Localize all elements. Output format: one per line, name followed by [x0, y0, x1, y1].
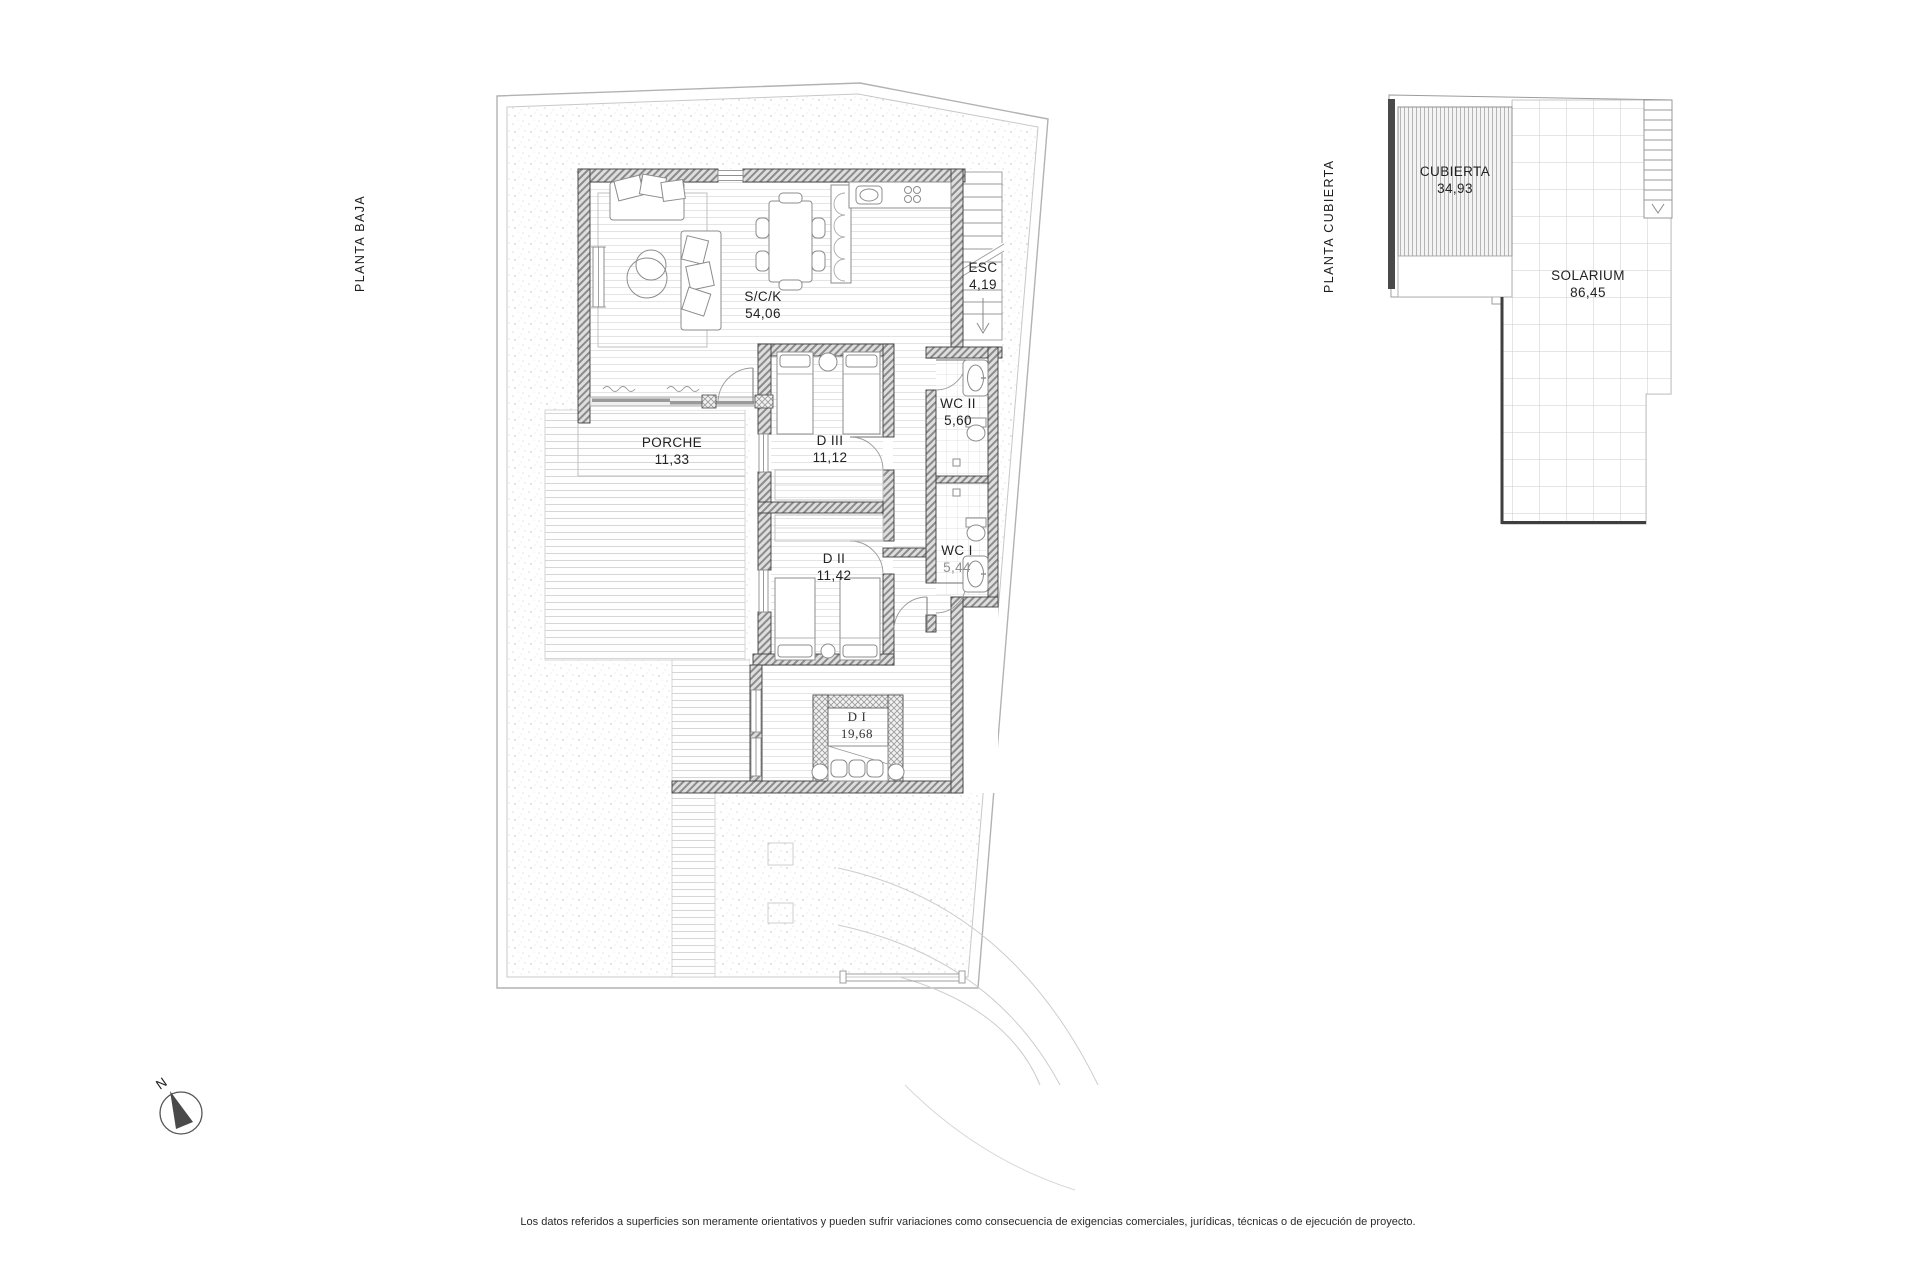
room-label-sck: S/C/K [744, 289, 781, 304]
toilet-icon [966, 518, 986, 541]
floorplan-sheet: S/C/K 54,06 ESC 4,19 WC II 5,60 D III 11… [0, 0, 1920, 1280]
room-area-porche: 11,33 [655, 452, 690, 467]
room-label-cubierta: CUBIERTA [1420, 164, 1490, 179]
room-area-sck: 54,06 [745, 306, 781, 321]
staircase [961, 172, 1004, 340]
north-arrow-needle [170, 1091, 193, 1129]
room-area-esc: 4,19 [969, 277, 997, 292]
roof-plan-title: PLANTA CUBIERTA [1322, 159, 1336, 293]
sink-icon [856, 186, 882, 204]
room-area-d3: 11,12 [813, 450, 848, 465]
north-arrow: N [153, 1074, 202, 1134]
ground-floor-title: PLANTA BAJA [353, 195, 367, 292]
room-label-d3: D III [817, 433, 844, 448]
room-label-porche: PORCHE [642, 435, 702, 450]
sink-icon [963, 360, 988, 396]
window-top [718, 171, 743, 181]
north-label: N [153, 1074, 170, 1092]
bed [775, 578, 815, 660]
room-area-wc2: 5,60 [944, 413, 972, 428]
window-d2 [759, 570, 768, 612]
room-label-wc1: WC I [941, 543, 973, 558]
nightstand [821, 644, 835, 658]
window-d3 [759, 434, 768, 472]
tv-console [591, 247, 606, 307]
room-label-d2: D II [823, 551, 846, 566]
room-label-solarium: SOLARIUM [1551, 268, 1625, 283]
roof-plan: CUBIERTA 34,93 SOLARIUM 86,45 [1388, 95, 1672, 524]
bed [840, 578, 880, 660]
room-area-solarium: 86,45 [1570, 285, 1606, 300]
nightstand [888, 764, 904, 780]
disclaimer-text: Los datos referidos a superficies son me… [520, 1216, 1415, 1228]
room-area-d1: 19,68 [841, 726, 873, 741]
bed [777, 352, 813, 434]
nightstand [819, 353, 837, 371]
room-area-wc1: 5,44 [943, 560, 971, 575]
nightstand [812, 764, 828, 780]
shower-drain [953, 489, 960, 496]
room-area-d2: 11,42 [817, 568, 852, 583]
room-label-wc2: WC II [940, 396, 976, 411]
room-label-d1: D I [848, 709, 867, 724]
shower-drain [953, 459, 960, 466]
room-label-esc: ESC [969, 260, 998, 275]
room-area-cubierta: 34,93 [1437, 181, 1473, 196]
roof-staircase [1644, 100, 1672, 218]
bed [843, 352, 880, 434]
